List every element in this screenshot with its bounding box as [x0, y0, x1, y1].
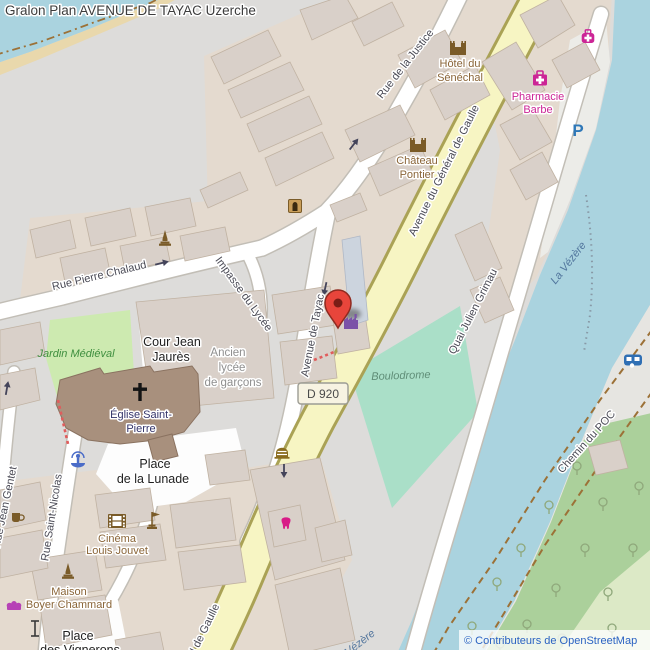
label-chateau-2: Pontier: [400, 169, 435, 181]
label-eglise-2: Pierre: [126, 423, 155, 435]
label-eglise-1: Église Saint-: [110, 408, 172, 421]
label-hotel-2: Sénéchal: [437, 72, 483, 84]
city-gate-icon: [289, 200, 302, 213]
parking-p-label: P: [572, 121, 583, 140]
label-maison-2: Boyer Chammard: [26, 599, 112, 611]
label-jardin: Jardin Médiéval: [36, 348, 115, 360]
label-pharmacie-2: Barbe: [523, 104, 552, 116]
label-lycee-3: de garçons: [205, 377, 262, 389]
label-vignerons-2: des Vignerons: [40, 643, 120, 650]
label-maison-1: Maison: [51, 586, 86, 598]
cinema-film-icon: [108, 514, 126, 528]
label-lunade-1: Place: [139, 457, 170, 471]
road-ref-shield: D 920: [298, 383, 348, 404]
map-svg[interactable]: D 920 Rue de la Justice Avenue du Généra…: [0, 0, 650, 650]
label-chateau-1: Château: [396, 155, 438, 167]
map-canvas[interactable]: D 920 Rue de la Justice Avenue du Généra…: [0, 0, 650, 650]
label-lycee-1: Ancien: [210, 347, 245, 359]
label-boulodrome: Boulodrome: [371, 369, 431, 383]
page-title: Gralon Plan AVENUE DE TAYAC Uzerche: [5, 3, 256, 18]
label-hotel-1: Hôtel du: [440, 58, 481, 70]
label-cour-1: Cour Jean: [143, 335, 201, 349]
label-lunade-2: de la Lunade: [117, 472, 189, 486]
attribution-bar: © Contributeurs de OpenStreetMap: [459, 630, 650, 650]
label-cour-2: Jaurès: [152, 350, 190, 364]
label-lycee-2: lycée: [219, 362, 246, 374]
label-vignerons-1: Place: [62, 629, 93, 643]
label-cinema-1: Cinéma: [98, 533, 137, 545]
road-ref-label: D 920: [307, 387, 339, 401]
label-cinema-2: Louis Jouvet: [86, 545, 148, 557]
label-pharmacie-1: Pharmacie: [512, 91, 565, 103]
attribution-link[interactable]: © Contributeurs de OpenStreetMap: [464, 635, 637, 647]
